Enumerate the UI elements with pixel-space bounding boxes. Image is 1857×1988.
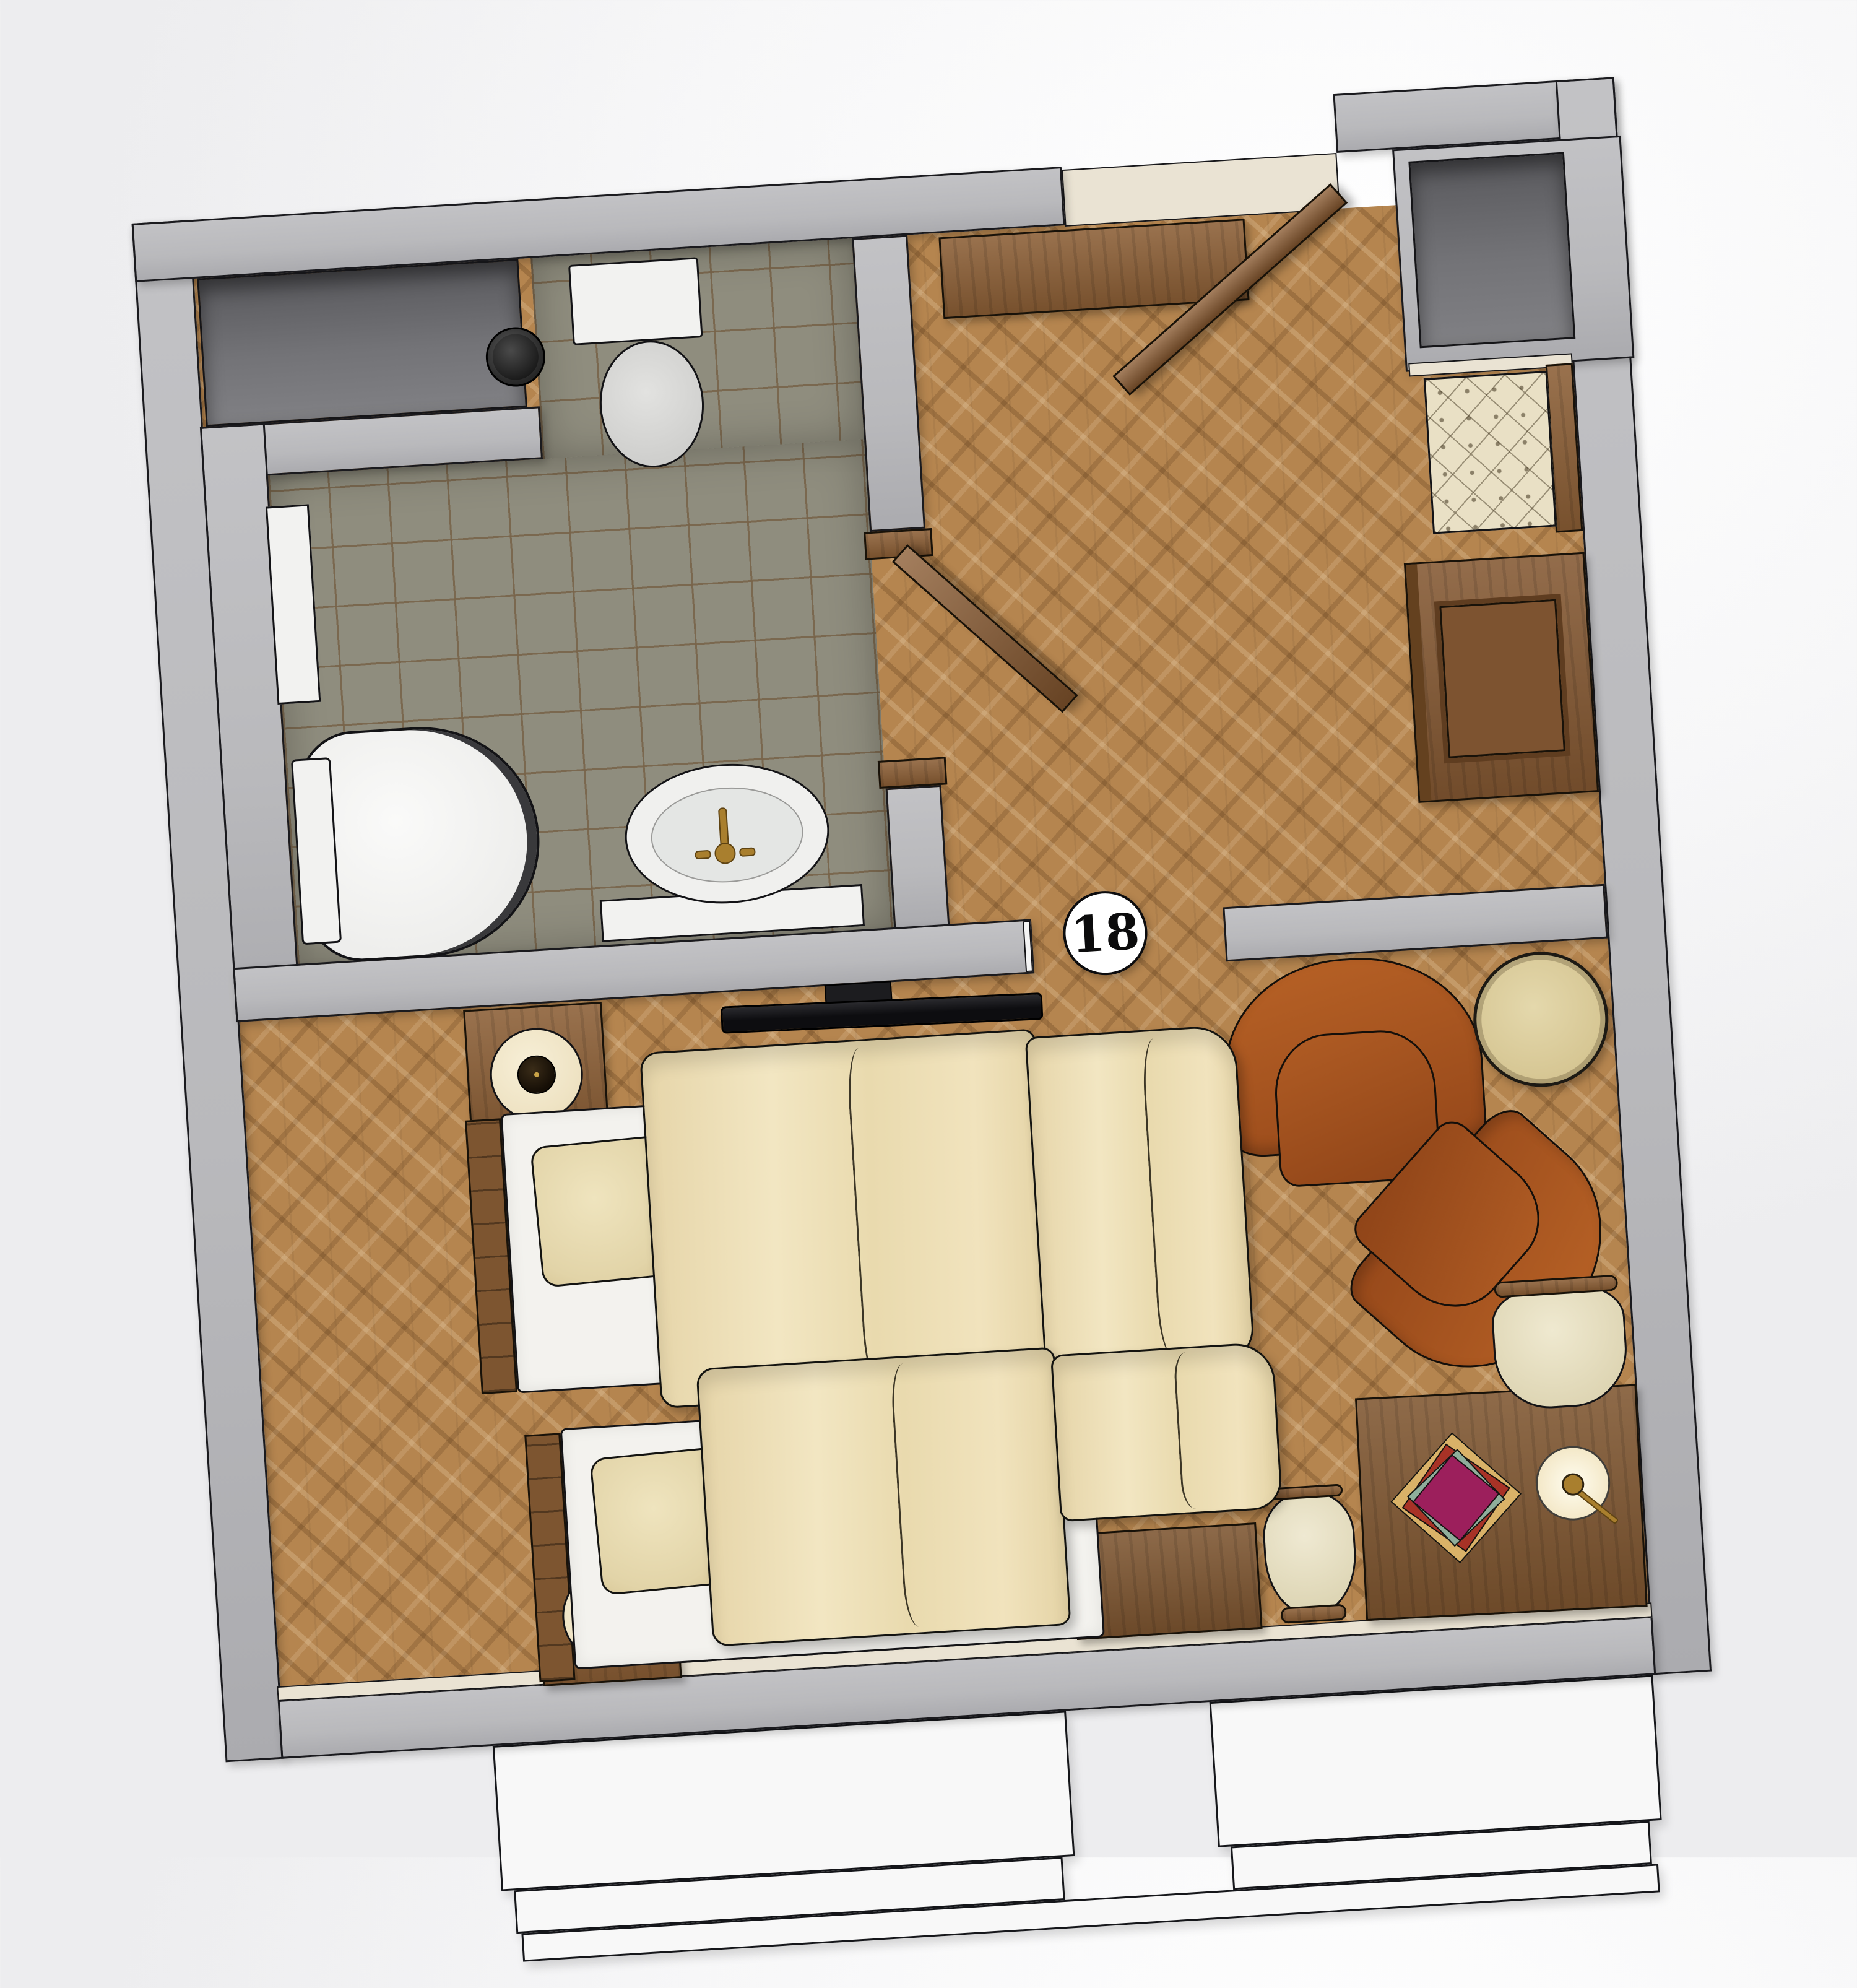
wardrobe-door-panel: [1434, 594, 1571, 763]
bathroom-door-jamb-lower: [878, 757, 948, 789]
duvet-seam: [1141, 1037, 1187, 1358]
entry-wall-niche: [1408, 152, 1575, 348]
bed-2-duvet-fold: [1050, 1342, 1283, 1522]
sink-faucet-handle-left: [695, 850, 711, 860]
bathroom-shaft-niche: [197, 259, 527, 427]
duvet-seam: [846, 1048, 893, 1387]
toilet-tank: [568, 257, 703, 345]
floor-plan: 18: [128, 74, 1729, 1988]
duvet-seam: [1173, 1351, 1209, 1509]
bed-1-duvet-fold: [1025, 1025, 1256, 1374]
bed-2-duvet: [696, 1347, 1071, 1647]
bathroom-divider-wall-lower: [886, 785, 950, 931]
room-number-text: 18: [1069, 902, 1141, 965]
tufted-bench: [1424, 371, 1557, 534]
lamp-shade-hole-1: [516, 1054, 556, 1095]
wall-block-top-right: [1392, 136, 1634, 372]
wardrobe: [1404, 552, 1599, 803]
sink-faucet-handle-right: [739, 847, 756, 857]
lamp-finial-1: [534, 1072, 539, 1077]
window-2: [1210, 1675, 1662, 1847]
page: { "room_label": { "number": "18" }, "pal…: [0, 0, 1857, 1857]
duvet-seam: [890, 1363, 932, 1628]
